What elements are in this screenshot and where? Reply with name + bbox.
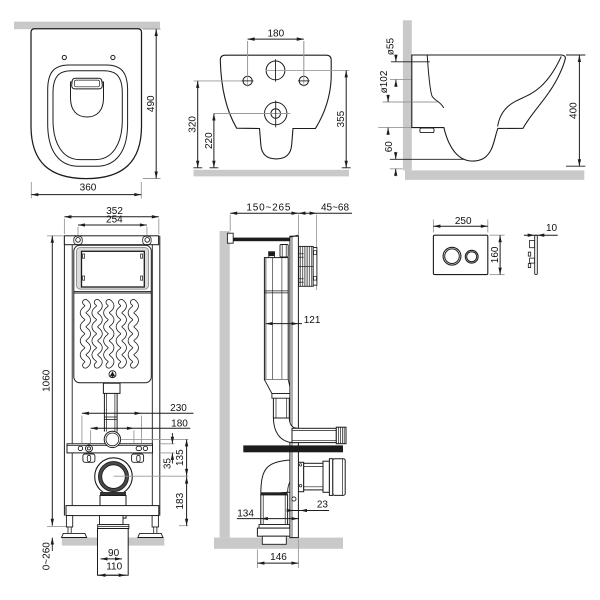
svg-text:0~260: 0~260	[41, 542, 52, 571]
svg-text:220: 220	[204, 132, 215, 149]
svg-text:230: 230	[170, 403, 187, 414]
svg-text:250: 250	[455, 216, 472, 227]
svg-text:254: 254	[106, 215, 123, 226]
svg-text:10: 10	[546, 223, 558, 234]
svg-text:320: 320	[188, 116, 199, 133]
svg-text:ø55: ø55	[386, 38, 397, 56]
svg-text:23: 23	[317, 500, 329, 511]
svg-text:35: 35	[163, 458, 174, 470]
svg-text:150~265: 150~265	[246, 203, 291, 214]
svg-text:121: 121	[304, 315, 321, 326]
svg-text:490: 490	[146, 95, 157, 112]
svg-text:360: 360	[80, 182, 97, 193]
svg-text:146: 146	[270, 552, 287, 563]
svg-text:ø102: ø102	[379, 70, 390, 93]
svg-text:183: 183	[175, 492, 186, 509]
svg-text:45~68: 45~68	[321, 203, 350, 214]
svg-text:90: 90	[108, 548, 120, 559]
svg-text:135: 135	[175, 449, 186, 466]
svg-text:1060: 1060	[41, 369, 52, 392]
svg-text:60: 60	[384, 141, 395, 153]
svg-text:134: 134	[237, 508, 254, 519]
svg-text:110: 110	[106, 562, 122, 573]
svg-text:355: 355	[336, 110, 347, 127]
svg-text:180: 180	[171, 418, 188, 429]
svg-text:180: 180	[267, 29, 284, 40]
svg-text:400: 400	[568, 102, 579, 119]
svg-text:160: 160	[490, 246, 501, 263]
